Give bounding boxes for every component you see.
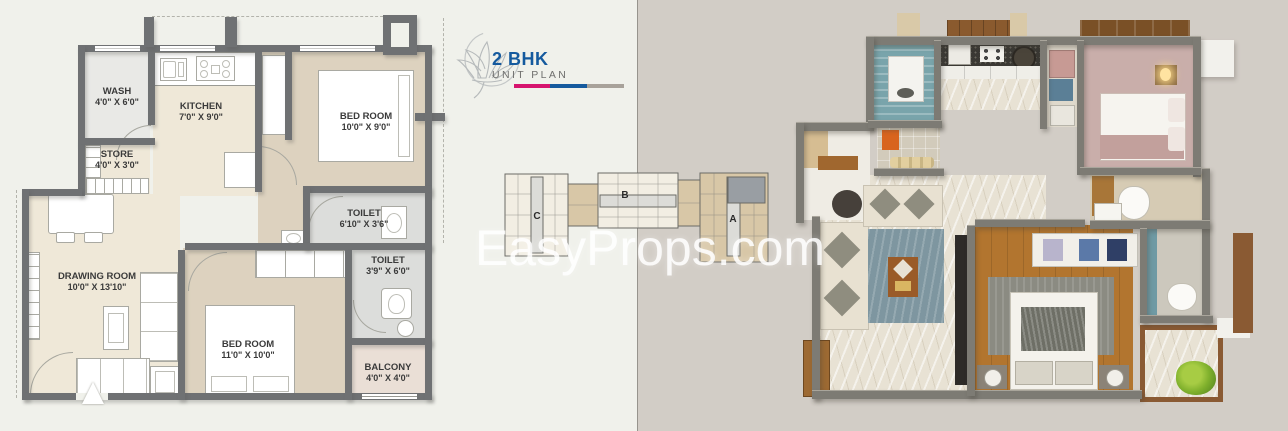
toilet-teal-3d — [1147, 228, 1210, 315]
setback-dashed-line-top — [152, 16, 388, 17]
wall — [178, 250, 185, 400]
window — [95, 46, 140, 51]
balcony-3d — [1140, 325, 1223, 402]
dining-chair — [56, 232, 75, 243]
coffee-table-3d — [888, 257, 918, 297]
floor-plan-3d — [788, 8, 1258, 408]
bench-cushion — [1055, 361, 1093, 385]
pillow — [1168, 98, 1185, 122]
room-dims: 4'0" X 4'0" — [365, 373, 412, 384]
room-dims: 10'0" X 9'0" — [340, 122, 392, 133]
room-name: TOILET — [371, 255, 405, 266]
key-plan-block-b-label: B — [621, 190, 628, 201]
unit-plan-sheet: WASH 4'0" X 6'0" KITCHEN 7'0" X 9'0" BED… — [0, 0, 1288, 431]
shirt — [1079, 239, 1099, 261]
setback-dashed-line-left — [16, 190, 17, 398]
flour-mill — [882, 130, 899, 150]
room-label-toilet2: TOILET 3'9" X 6'0" — [366, 255, 410, 277]
wardrobe-shirts-3d — [1032, 233, 1138, 267]
nightstand-fan — [1099, 365, 1129, 389]
room-label-kitchen: KITCHEN 7'0" X 9'0" — [179, 101, 223, 123]
logo-subtitle: UNIT PLAN — [492, 69, 568, 81]
window — [362, 394, 417, 399]
room-name: TOILET — [347, 208, 381, 219]
wall — [78, 138, 155, 145]
setback-dashed-line-right — [443, 18, 444, 243]
room-name: KITCHEN — [180, 101, 222, 112]
wall — [303, 186, 432, 193]
room-dims: 4'0" X 6'0" — [95, 97, 139, 108]
kitchen-hob-3d — [980, 46, 1004, 62]
nightstand-lamp — [1155, 65, 1177, 85]
center-table — [103, 306, 129, 350]
tv-panel-3d — [955, 235, 967, 385]
column-hollow — [391, 23, 409, 47]
wall-3d — [1077, 40, 1084, 175]
dining-chair — [84, 232, 103, 243]
wall — [425, 45, 432, 195]
kitchen-sink-3d — [948, 44, 971, 65]
wall-3d — [812, 390, 1142, 399]
wall-3d — [1193, 36, 1201, 177]
wall-3d — [1090, 220, 1210, 229]
plant — [1176, 361, 1216, 395]
wall-3d — [967, 225, 975, 396]
room-label-balcony: BALCONY 4'0" X 4'0" — [365, 362, 412, 384]
room-label-store: STORE 4'0" X 3'0" — [95, 149, 139, 171]
wall-3d — [874, 168, 944, 176]
wall-stub — [144, 17, 154, 47]
wall-3d — [1080, 167, 1201, 175]
wall — [148, 52, 155, 125]
room-label-toilet1: TOILET 6'10" X 3'6" — [340, 208, 389, 230]
room-name: STORE — [101, 149, 134, 160]
kitchen-stove — [196, 56, 235, 81]
bed-bottom-3d — [1010, 292, 1098, 390]
logo-bar-gray — [587, 84, 624, 88]
jar-row — [890, 157, 934, 168]
store-shelf-row — [85, 178, 149, 194]
refrigerator — [224, 152, 257, 188]
washing-machine — [888, 56, 924, 102]
wall-3d — [1040, 40, 1047, 129]
wall-3d — [1140, 228, 1147, 321]
foyer-3d — [800, 130, 870, 220]
toilet2-washbasin — [397, 320, 414, 337]
room-name: WASH — [103, 86, 132, 97]
logo-bar-pink — [514, 84, 550, 88]
shirt — [1107, 239, 1127, 261]
room-dims: 11'0" X 10'0" — [221, 350, 274, 361]
round-table — [832, 190, 862, 218]
entry-arrow — [82, 382, 104, 404]
room-dims: 10'0" X 13'10" — [58, 282, 136, 293]
bench-cushion — [1015, 361, 1053, 385]
room-name: DRAWING ROOM — [58, 271, 136, 282]
wall-3d — [975, 219, 1085, 227]
wall-3d — [934, 40, 941, 127]
wall — [345, 250, 352, 400]
wall — [303, 186, 310, 250]
wall — [352, 338, 432, 345]
wall-3d — [866, 36, 1196, 45]
wall-3d — [796, 122, 804, 223]
bedroom2-wardrobe — [255, 250, 347, 278]
logo-bar-blue — [550, 84, 587, 88]
wall-3d — [1140, 315, 1213, 323]
window — [300, 46, 375, 51]
wall — [185, 243, 432, 250]
dining-table — [48, 194, 114, 234]
kitchen-sink — [160, 58, 187, 81]
nightstand-fan — [977, 365, 1007, 389]
pillow — [1168, 127, 1185, 151]
wall-3d — [868, 120, 942, 128]
kitchen-cabinet-front — [938, 66, 1043, 79]
window — [160, 46, 215, 51]
wc — [1167, 283, 1197, 311]
shirt — [1043, 239, 1063, 261]
room-dims: 3'9" X 6'0" — [366, 266, 410, 277]
wall — [78, 45, 85, 145]
wall-stub — [225, 17, 237, 47]
room-label-bedroom2: BED ROOM 11'0" X 10'0" — [221, 339, 274, 361]
wc — [1118, 186, 1150, 220]
logo-title: 2 BHK — [492, 49, 549, 70]
watermark: EasyProps.com — [450, 219, 850, 277]
room-dims: 7'0" X 9'0" — [179, 112, 223, 123]
wall-3d — [866, 36, 874, 129]
bedroom-top-3d — [1080, 43, 1193, 173]
room-label-bedroom1: BED ROOM 10'0" X 9'0" — [340, 111, 392, 133]
entry-mat — [818, 156, 858, 170]
side-deck — [1233, 233, 1253, 333]
wall-3d — [1202, 168, 1210, 321]
room-dims: 6'10" X 3'6" — [340, 219, 389, 230]
bath-center-3d — [1047, 43, 1077, 127]
room-name: BALCONY — [365, 362, 412, 373]
wall — [22, 189, 82, 196]
wall — [255, 52, 262, 192]
wall — [22, 189, 29, 400]
room-label-wash: WASH 4'0" X 6'0" — [95, 86, 139, 108]
wall-3d — [796, 122, 874, 131]
wall — [425, 193, 432, 400]
sofa-top-3d — [863, 185, 943, 227]
room-name: BED ROOM — [340, 111, 392, 122]
store-3d — [877, 123, 940, 173]
room-dims: 4'0" X 3'0" — [95, 160, 139, 171]
room-name: BED ROOM — [222, 339, 274, 350]
wall — [285, 52, 292, 140]
room-label-drawing-room: DRAWING ROOM 10'0" X 13'10" — [58, 271, 136, 293]
sofa-right — [140, 272, 178, 362]
